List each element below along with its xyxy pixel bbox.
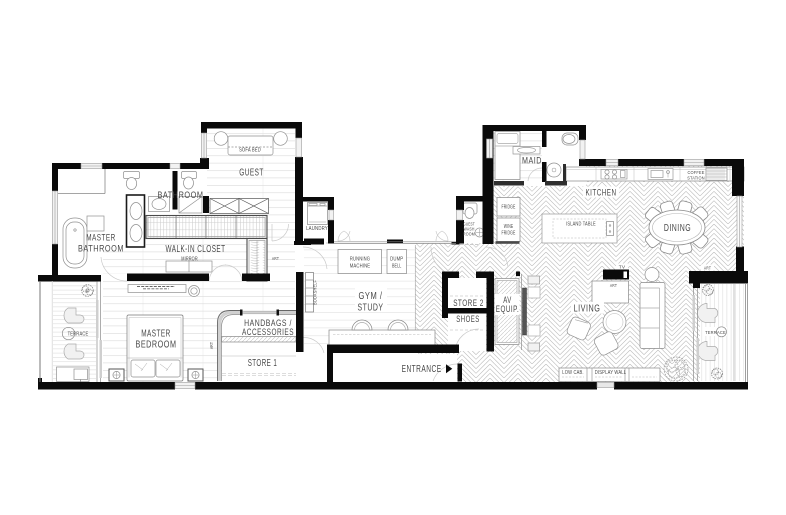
svg-text:BATHROOM: BATHROOM (158, 190, 204, 201)
svg-text:GUEST: GUEST (239, 168, 264, 179)
svg-text:LIVING: LIVING (574, 304, 601, 315)
svg-text:COFFEE: COFFEE (688, 170, 705, 176)
svg-text:TERRACE: TERRACE (705, 330, 726, 335)
svg-text:ART: ART (272, 256, 279, 261)
svg-text:BATHROOM: BATHROOM (78, 244, 124, 255)
svg-text:ENTRANCE: ENTRANCE (402, 364, 442, 375)
svg-text:SOFA BED: SOFA BED (239, 148, 261, 154)
svg-text:MACHINE: MACHINE (350, 264, 371, 270)
svg-text:DUMP: DUMP (390, 257, 403, 263)
svg-text:DINING: DINING (664, 223, 691, 234)
svg-text:SHOES: SHOES (456, 314, 479, 325)
svg-text:EQUIP.: EQUIP. (496, 304, 519, 314)
svg-text:ART: ART (610, 283, 617, 288)
svg-text:ART: ART (209, 342, 214, 349)
svg-text:FRIDGE: FRIDGE (502, 231, 516, 237)
svg-text:KITCHEN: KITCHEN (586, 188, 617, 199)
svg-text:STATION: STATION (687, 176, 705, 182)
svg-text:MAID: MAID (522, 156, 542, 166)
svg-text:TERRACE: TERRACE (68, 332, 89, 338)
svg-text:DISPLAY WALL: DISPLAY WALL (595, 370, 627, 376)
svg-text:STORE 2: STORE 2 (453, 298, 484, 309)
svg-text:BELL: BELL (392, 264, 402, 270)
svg-text:LAUNDRY: LAUNDRY (306, 226, 328, 232)
svg-text:WINE: WINE (504, 224, 514, 230)
svg-text:RUNNING: RUNNING (350, 257, 370, 263)
svg-text:ROOM: ROOM (463, 232, 475, 237)
svg-text:WALK-IN CLOSET: WALK-IN CLOSET (166, 244, 226, 255)
svg-text:LOW CAB.: LOW CAB. (562, 370, 583, 376)
svg-text:BEDROOM: BEDROOM (136, 340, 177, 351)
svg-text:MASTER: MASTER (86, 233, 116, 244)
svg-text:ACCESSORIES: ACCESSORIES (242, 327, 294, 337)
svg-text:BOOKSHELF: BOOKSHELF (313, 280, 318, 305)
svg-text:MASTER: MASTER (141, 329, 171, 340)
svg-text:FRIDGE: FRIDGE (502, 205, 516, 211)
svg-text:TV: TV (619, 265, 626, 270)
svg-text:MIRROR: MIRROR (181, 256, 198, 262)
svg-text:STORE 1: STORE 1 (248, 358, 278, 369)
svg-text:ART: ART (704, 266, 711, 271)
svg-text:STUDY: STUDY (358, 303, 384, 314)
svg-text:ISLAND TABLE: ISLAND TABLE (566, 222, 596, 228)
svg-text:GYM /: GYM / (359, 291, 383, 302)
